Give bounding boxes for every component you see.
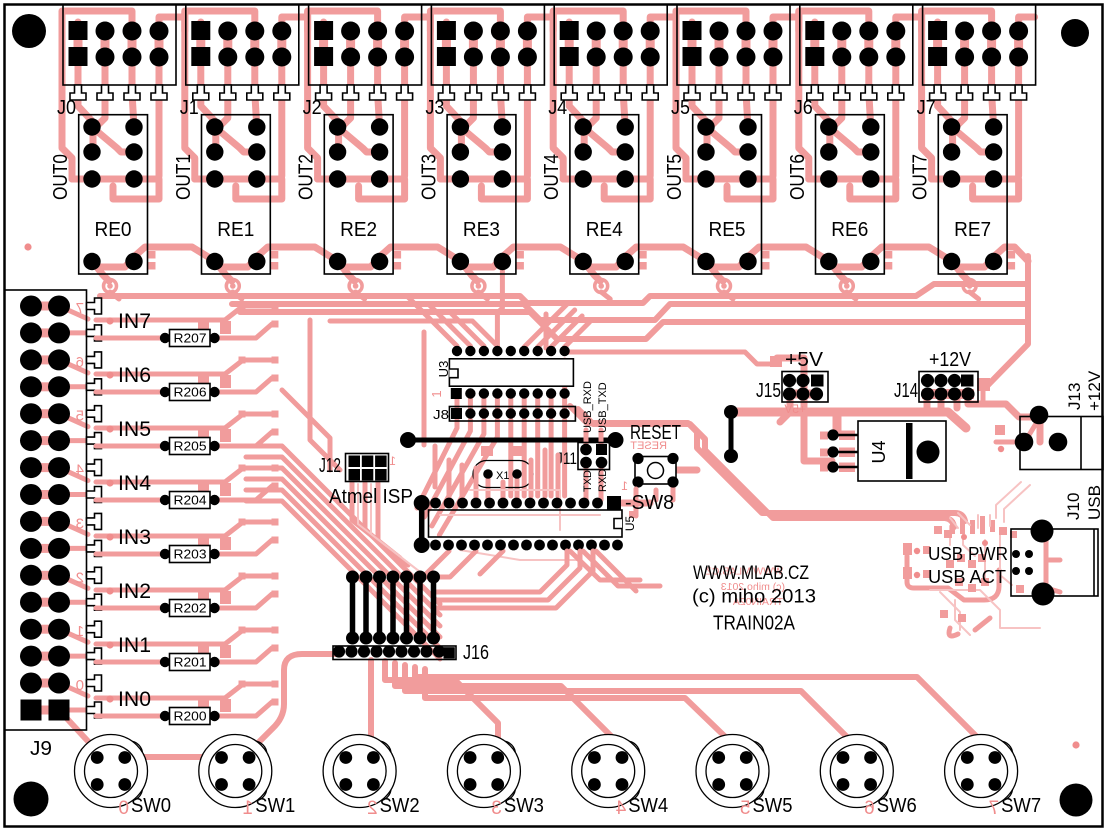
svg-text:4: 4 xyxy=(615,798,626,819)
svg-text:RE4: RE4 xyxy=(586,219,623,241)
svg-text:J15: J15 xyxy=(756,380,781,402)
svg-text:USB_RXD: USB_RXD xyxy=(582,381,594,433)
svg-text:J4: J4 xyxy=(548,97,567,119)
svg-text:7: 7 xyxy=(76,300,84,317)
svg-text:J10: J10 xyxy=(1064,493,1083,520)
svg-text:SW2: SW2 xyxy=(380,795,420,817)
svg-text:R206: R206 xyxy=(174,385,207,400)
svg-text:J16: J16 xyxy=(463,642,489,664)
svg-text:USB PWR: USB PWR xyxy=(928,544,1008,564)
svg-text:RE6: RE6 xyxy=(831,219,868,241)
svg-text:IN4: IN4 xyxy=(118,472,151,495)
svg-text:TXD: TXD xyxy=(582,470,594,492)
svg-text:IN7: IN7 xyxy=(118,310,151,333)
svg-text:6: 6 xyxy=(864,798,875,819)
svg-text:1: 1 xyxy=(429,390,444,397)
svg-text:+12V: +12V xyxy=(1085,370,1104,411)
svg-text:SW1: SW1 xyxy=(255,795,295,817)
svg-text:3: 3 xyxy=(76,515,84,532)
svg-text:RE7: RE7 xyxy=(954,219,991,241)
svg-text:U5: U5 xyxy=(623,516,637,532)
svg-text:J1: J1 xyxy=(180,97,199,119)
svg-text:+12V: +12V xyxy=(929,349,972,371)
svg-text:WWW.MLAB.CZ: WWW.MLAB.CZ xyxy=(693,563,809,584)
svg-text:1: 1 xyxy=(243,798,254,819)
svg-text:(c) miho 2013: (c) miho 2013 xyxy=(692,587,816,608)
svg-text:RXD: RXD xyxy=(597,469,609,492)
svg-text:USB: USB xyxy=(1085,485,1104,520)
svg-text:4: 4 xyxy=(76,462,84,479)
svg-text:TRAIN02A: TRAIN02A xyxy=(713,613,796,635)
svg-text:J7: J7 xyxy=(917,97,936,119)
svg-text:R207: R207 xyxy=(174,331,207,346)
svg-text:OUT0: OUT0 xyxy=(50,154,72,200)
svg-text:SW7: SW7 xyxy=(1001,795,1041,817)
svg-text:R204: R204 xyxy=(174,493,207,508)
svg-text:R201: R201 xyxy=(174,655,207,670)
svg-text:RE1: RE1 xyxy=(217,219,254,241)
svg-text:J5: J5 xyxy=(671,97,690,119)
svg-text:OUT2: OUT2 xyxy=(296,154,318,200)
svg-text:J2: J2 xyxy=(303,97,322,119)
svg-text:RE2: RE2 xyxy=(340,219,377,241)
svg-text:3: 3 xyxy=(491,798,502,819)
svg-text:SW6: SW6 xyxy=(877,795,917,817)
svg-text:SW4: SW4 xyxy=(628,795,668,817)
svg-text:+5V: +5V xyxy=(785,349,824,371)
svg-text:J6: J6 xyxy=(794,97,813,119)
svg-text:-SW8: -SW8 xyxy=(625,492,674,514)
svg-text:U4: U4 xyxy=(869,440,889,463)
svg-text:J14: J14 xyxy=(894,380,918,402)
svg-text:IN1: IN1 xyxy=(118,634,151,657)
svg-text:OUT4: OUT4 xyxy=(541,154,563,200)
svg-text:0: 0 xyxy=(76,677,84,694)
svg-text:R202: R202 xyxy=(174,601,207,616)
svg-text:SW3: SW3 xyxy=(504,795,544,817)
svg-text:R205: R205 xyxy=(174,439,207,454)
svg-text:Atmel ISP: Atmel ISP xyxy=(329,486,413,508)
svg-text:OUT5: OUT5 xyxy=(664,154,686,200)
svg-text:5: 5 xyxy=(76,408,84,425)
svg-text:RESET: RESET xyxy=(630,440,667,452)
svg-text:RE3: RE3 xyxy=(463,219,500,241)
svg-text:USB_TXD: USB_TXD xyxy=(597,382,609,433)
svg-text:+5V: +5V xyxy=(784,402,806,416)
svg-text:2: 2 xyxy=(367,798,378,819)
svg-text:J3: J3 xyxy=(425,97,444,119)
svg-text:1: 1 xyxy=(76,623,84,640)
svg-text:J9: J9 xyxy=(30,738,52,760)
svg-text:J8: J8 xyxy=(433,407,449,422)
svg-text:IN6: IN6 xyxy=(118,364,151,387)
svg-text:IN2: IN2 xyxy=(118,580,151,603)
svg-text:J13: J13 xyxy=(1065,383,1084,410)
svg-text:7: 7 xyxy=(989,798,1000,819)
svg-text:IN5: IN5 xyxy=(118,418,151,441)
svg-text:USB ACT: USB ACT xyxy=(928,567,1006,587)
svg-text:SW5: SW5 xyxy=(753,795,793,817)
svg-text:OUT3: OUT3 xyxy=(418,154,440,200)
svg-text:R203: R203 xyxy=(174,547,207,562)
svg-text:R200: R200 xyxy=(174,709,207,724)
svg-text:J12: J12 xyxy=(319,455,341,477)
svg-text:1: 1 xyxy=(389,454,396,468)
svg-text:2: 2 xyxy=(76,569,84,586)
svg-text:SW0: SW0 xyxy=(131,795,171,817)
svg-text:IN3: IN3 xyxy=(118,526,151,549)
svg-text:OUT6: OUT6 xyxy=(787,154,809,200)
svg-text:0: 0 xyxy=(118,798,129,819)
svg-text:1: 1 xyxy=(621,479,628,493)
svg-text:5: 5 xyxy=(740,798,751,819)
svg-text:U3: U3 xyxy=(436,361,451,378)
svg-text:OUT1: OUT1 xyxy=(173,154,195,200)
svg-text:J0: J0 xyxy=(57,97,76,119)
svg-text:RE5: RE5 xyxy=(709,219,746,241)
svg-text:OUT7: OUT7 xyxy=(910,154,932,200)
svg-text:6: 6 xyxy=(76,354,84,371)
svg-text:IN0: IN0 xyxy=(118,688,151,711)
svg-text:RE0: RE0 xyxy=(95,219,132,241)
